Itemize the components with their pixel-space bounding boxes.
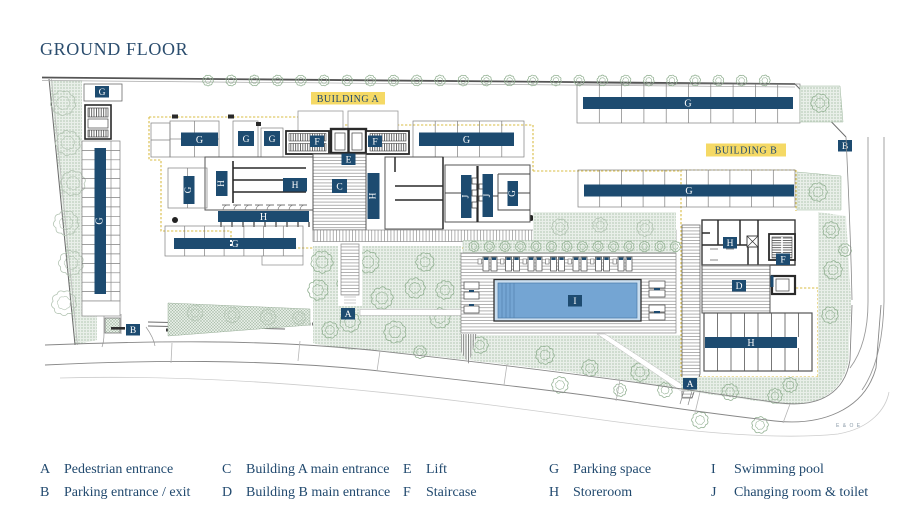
svg-text:G: G [685,186,692,197]
svg-text:G: G [684,99,691,110]
svg-text:B: B [842,142,848,152]
svg-text:E: E [346,156,352,166]
svg-text:H: H [216,180,226,187]
svg-text:F: F [372,138,377,148]
svg-text:J: J [460,194,470,198]
svg-text:A: A [687,380,694,390]
svg-text:BUILDING B: BUILDING B [715,146,778,157]
svg-text:F: F [314,138,319,148]
svg-text:G: G [183,186,193,193]
svg-text:G: G [269,135,276,145]
svg-text:I: I [573,297,576,307]
svg-text:E & O E: E & O E [836,423,861,429]
svg-text:H: H [368,192,378,199]
svg-text:G: G [99,88,106,98]
svg-text:G: G [231,239,238,250]
svg-text:F: F [780,256,785,266]
svg-text:J: J [482,193,492,197]
svg-text:BUILDING A: BUILDING A [317,94,380,105]
svg-text:G: G [196,135,203,146]
svg-text:H: H [727,239,734,249]
svg-text:B: B [130,326,136,336]
svg-text:H: H [292,181,299,191]
svg-text:G: G [507,190,517,197]
svg-text:C: C [336,182,342,192]
svg-text:H: H [747,338,754,349]
svg-text:H: H [260,212,267,223]
svg-text:G: G [95,217,106,224]
svg-text:A: A [345,310,352,320]
svg-text:G: G [243,135,250,145]
svg-text:G: G [463,135,470,146]
svg-text:D: D [736,282,743,292]
